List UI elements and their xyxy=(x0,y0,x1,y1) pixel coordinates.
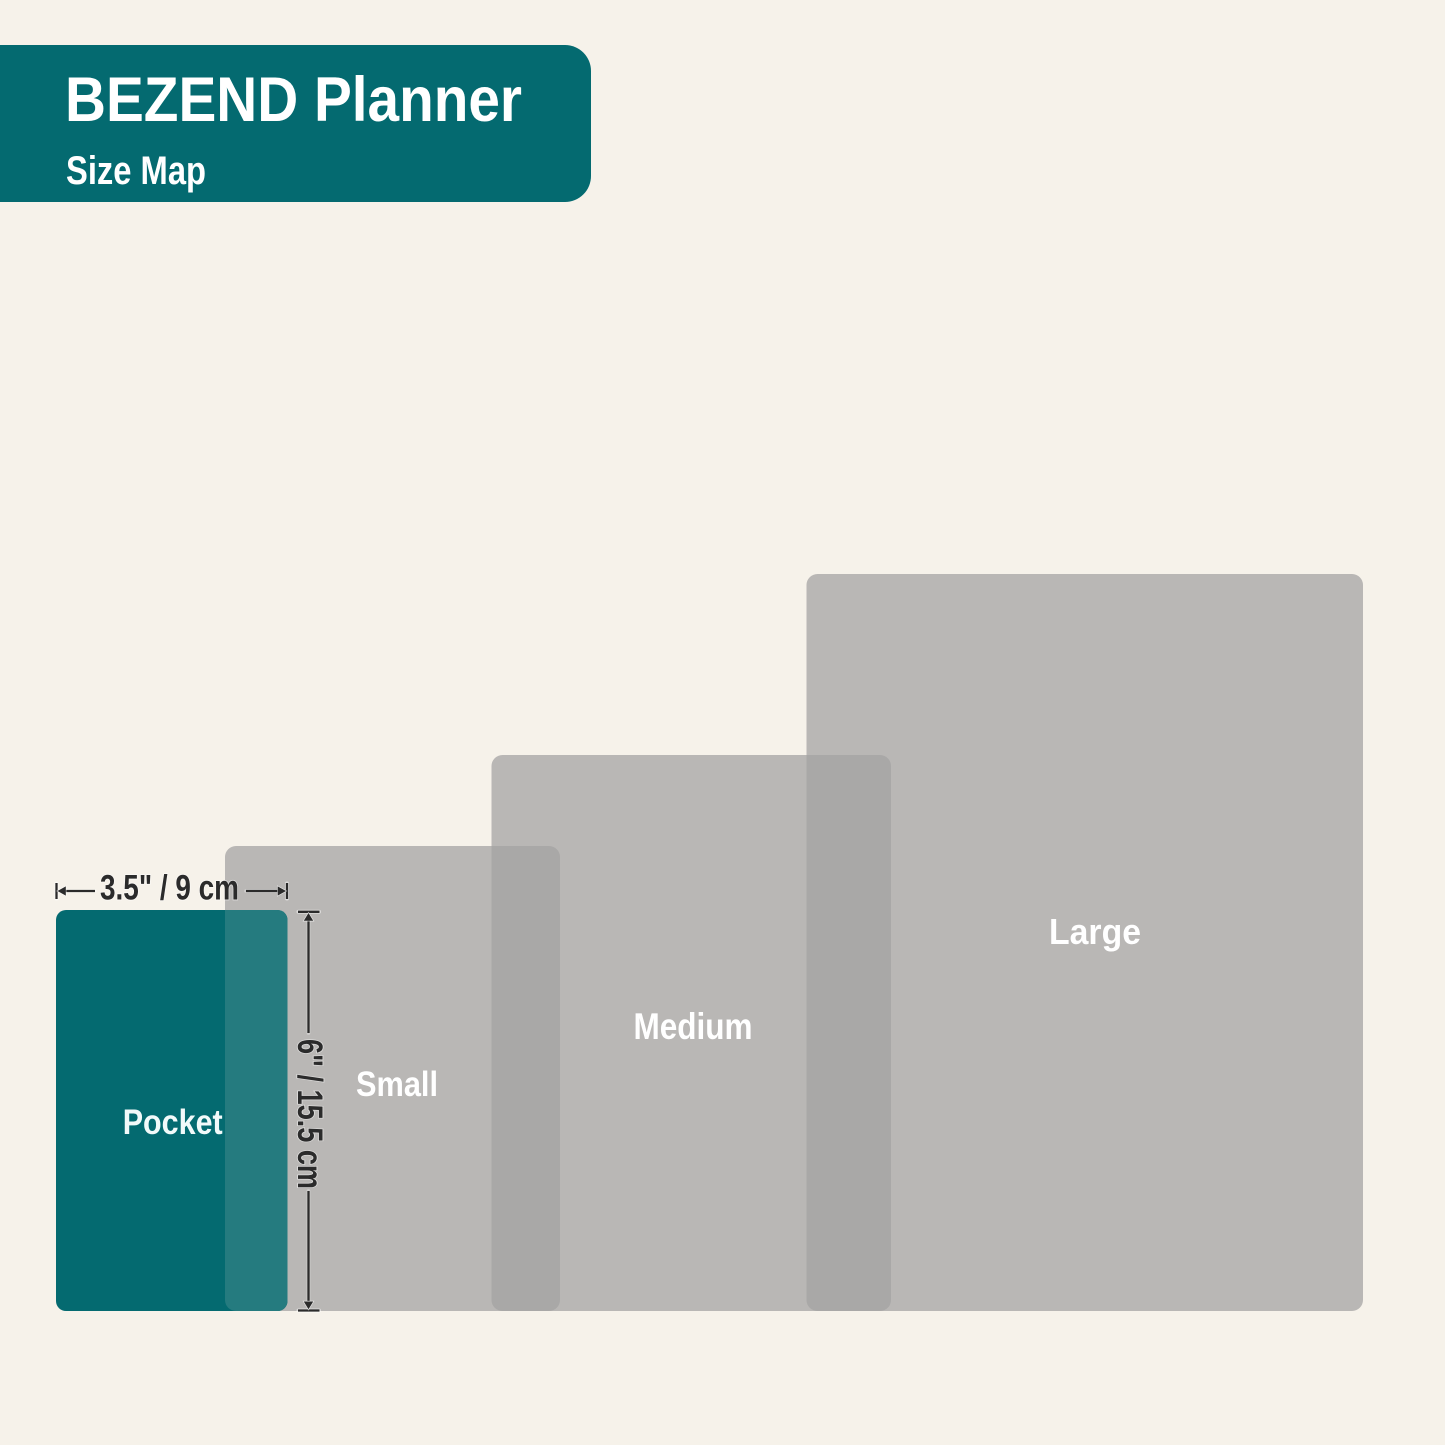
svg-text:BEZEND Planner: BEZEND Planner xyxy=(65,65,522,135)
svg-text:Medium: Medium xyxy=(634,1006,753,1047)
svg-text:Small: Small xyxy=(356,1065,438,1104)
svg-text:Pocket: Pocket xyxy=(123,1103,223,1142)
svg-text:3.5" / 9 cm: 3.5" / 9 cm xyxy=(100,869,239,908)
svg-text:6" / 15.5 cm: 6" / 15.5 cm xyxy=(290,1039,329,1189)
svg-text:Large: Large xyxy=(1049,911,1141,952)
svg-text:Size Map: Size Map xyxy=(66,149,206,193)
